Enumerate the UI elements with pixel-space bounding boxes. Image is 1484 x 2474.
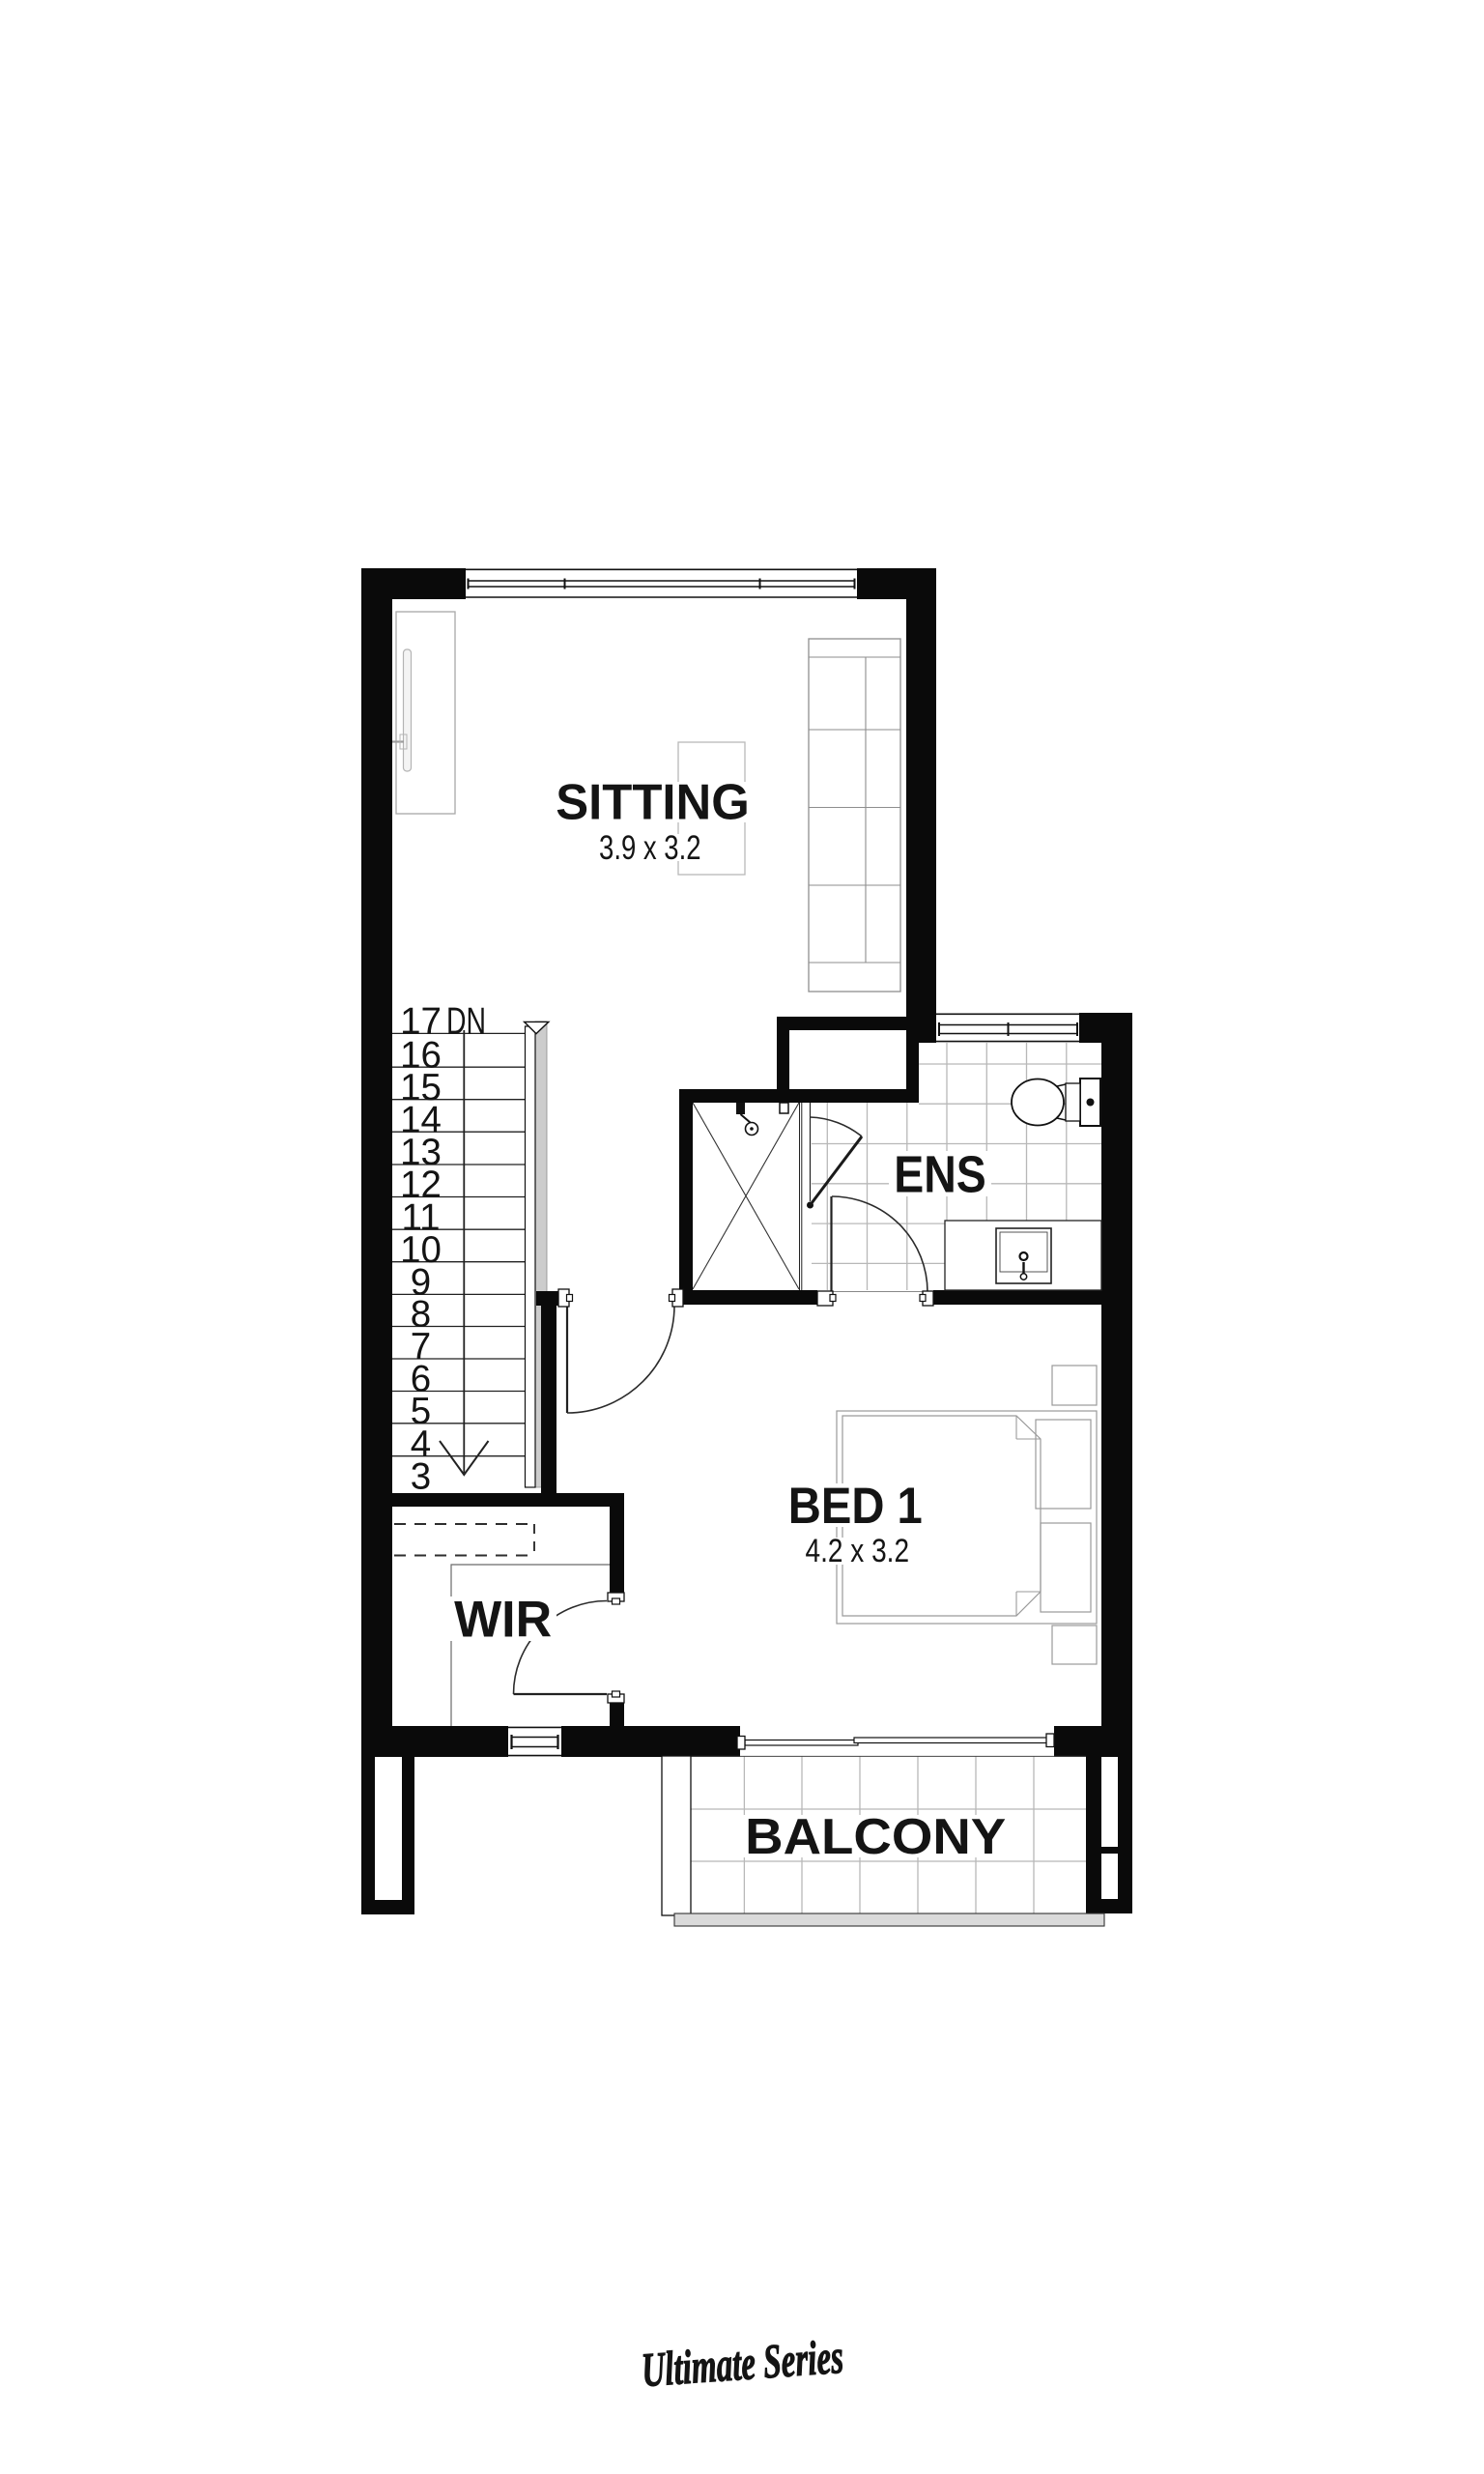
svg-text:DN: DN — [446, 1000, 486, 1042]
svg-text:3.9 x 3.2: 3.9 x 3.2 — [599, 829, 701, 867]
svg-text:BED 1: BED 1 — [788, 1478, 923, 1535]
svg-text:3: 3 — [411, 1456, 431, 1498]
svg-text:ENS: ENS — [894, 1147, 986, 1204]
svg-text:BALCONY: BALCONY — [745, 1808, 1006, 1864]
svg-text:SITTING: SITTING — [556, 773, 750, 829]
svg-text:WIR: WIR — [454, 1592, 552, 1649]
svg-text:4.2 x 3.2: 4.2 x 3.2 — [806, 1533, 910, 1569]
